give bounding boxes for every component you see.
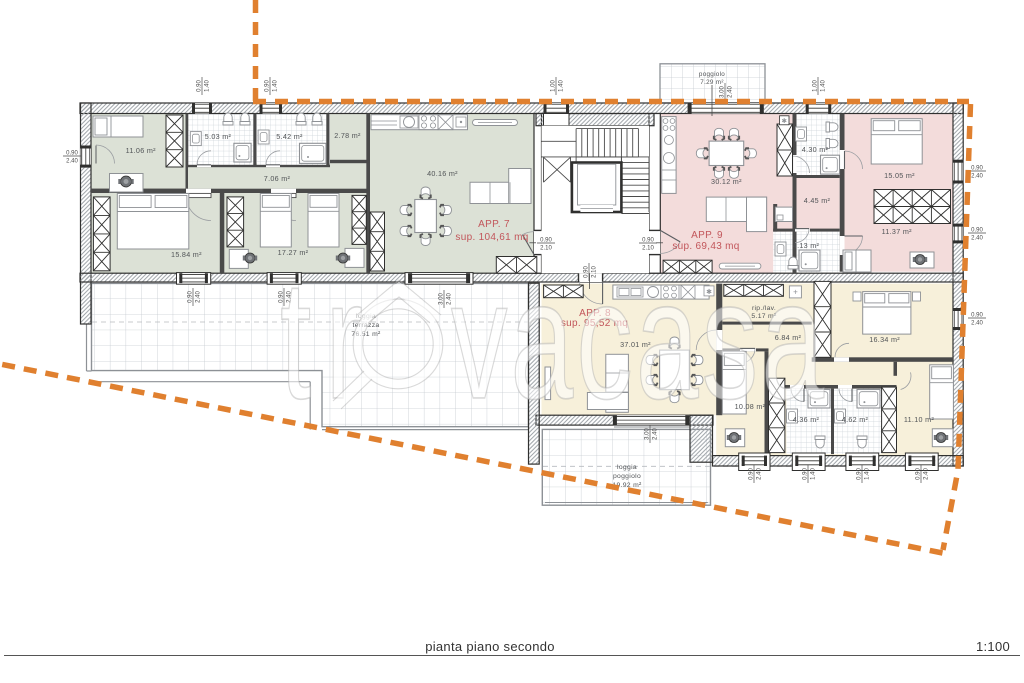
svg-text:0.90: 0.90 [188,291,194,303]
svg-text:1.40: 1.40 [273,80,279,92]
svg-text:1.40: 1.40 [865,468,871,480]
svg-text:APP. 7: APP. 7 [478,219,510,230]
svg-text:2.40: 2.40 [971,236,983,242]
svg-text:1:100: 1:100 [976,639,1010,654]
svg-text:0.90: 0.90 [971,313,983,319]
svg-text:0.90: 0.90 [197,80,203,92]
svg-text:2.78 m²: 2.78 m² [334,131,361,140]
svg-text:0.90: 0.90 [265,80,271,92]
svg-text:11.37 m²: 11.37 m² [882,227,913,236]
svg-text:5.03 m²: 5.03 m² [205,132,232,141]
svg-text:APP. 9: APP. 9 [691,230,723,241]
svg-text:0.90: 0.90 [971,228,983,234]
svg-text:2.40: 2.40 [757,468,763,480]
svg-text:11.10 m²: 11.10 m² [904,415,935,424]
svg-text:2.40: 2.40 [924,468,930,480]
svg-text:40.16 m²: 40.16 m² [427,169,458,178]
svg-text:30.12 m²: 30.12 m² [711,177,742,186]
svg-text:2.40: 2.40 [971,321,983,327]
svg-text:0.90: 0.90 [916,468,922,480]
svg-text:0.90: 0.90 [66,151,78,157]
svg-text:5.42 m²: 5.42 m² [276,132,303,141]
svg-text:pianta piano secondo: pianta piano secondo [425,639,555,654]
svg-text:4.45 m²: 4.45 m² [804,196,831,205]
svg-text:2.40: 2.40 [971,174,983,180]
svg-text:loggia: loggia [617,464,637,471]
svg-text:2.40: 2.40 [196,291,202,303]
svg-text:1.00: 1.00 [813,80,819,92]
svg-text:4.62 m²: 4.62 m² [842,415,869,424]
svg-text:7.29 m²: 7.29 m² [700,79,723,86]
svg-text:0.90: 0.90 [971,166,983,172]
svg-text:1.00: 1.00 [551,80,557,92]
svg-text:0.90: 0.90 [803,468,809,480]
svg-text:16.34 m²: 16.34 m² [869,335,900,344]
svg-text:15.05 m²: 15.05 m² [884,171,915,180]
svg-text:3.00: 3.00 [720,86,726,98]
svg-text:1.40: 1.40 [821,80,827,92]
svg-text:2.40: 2.40 [728,86,734,98]
svg-text:0.90: 0.90 [749,468,755,480]
svg-text:0.90: 0.90 [857,468,863,480]
svg-text:vacasa: vacasa [451,245,827,434]
svg-text:0.90: 0.90 [642,238,654,244]
svg-text:15.84 m²: 15.84 m² [171,250,202,259]
svg-text:sup. 104,61 mq: sup. 104,61 mq [455,232,528,243]
svg-text:poggiolo: poggiolo [613,473,641,480]
svg-text:2.40: 2.40 [66,159,78,165]
svg-text:11.06 m²: 11.06 m² [126,146,157,155]
svg-text:1.40: 1.40 [205,80,211,92]
svg-text:1.40: 1.40 [811,468,817,480]
svg-text:4.30 m²: 4.30 m² [802,145,829,154]
svg-text:3.00: 3.00 [439,293,445,305]
svg-text:poggiolo: poggiolo [699,71,725,78]
svg-text:0.90: 0.90 [540,238,552,244]
svg-text:✱: ✱ [781,117,787,125]
svg-text:7.06 m²: 7.06 m² [264,174,291,183]
svg-text:1.40: 1.40 [559,80,565,92]
